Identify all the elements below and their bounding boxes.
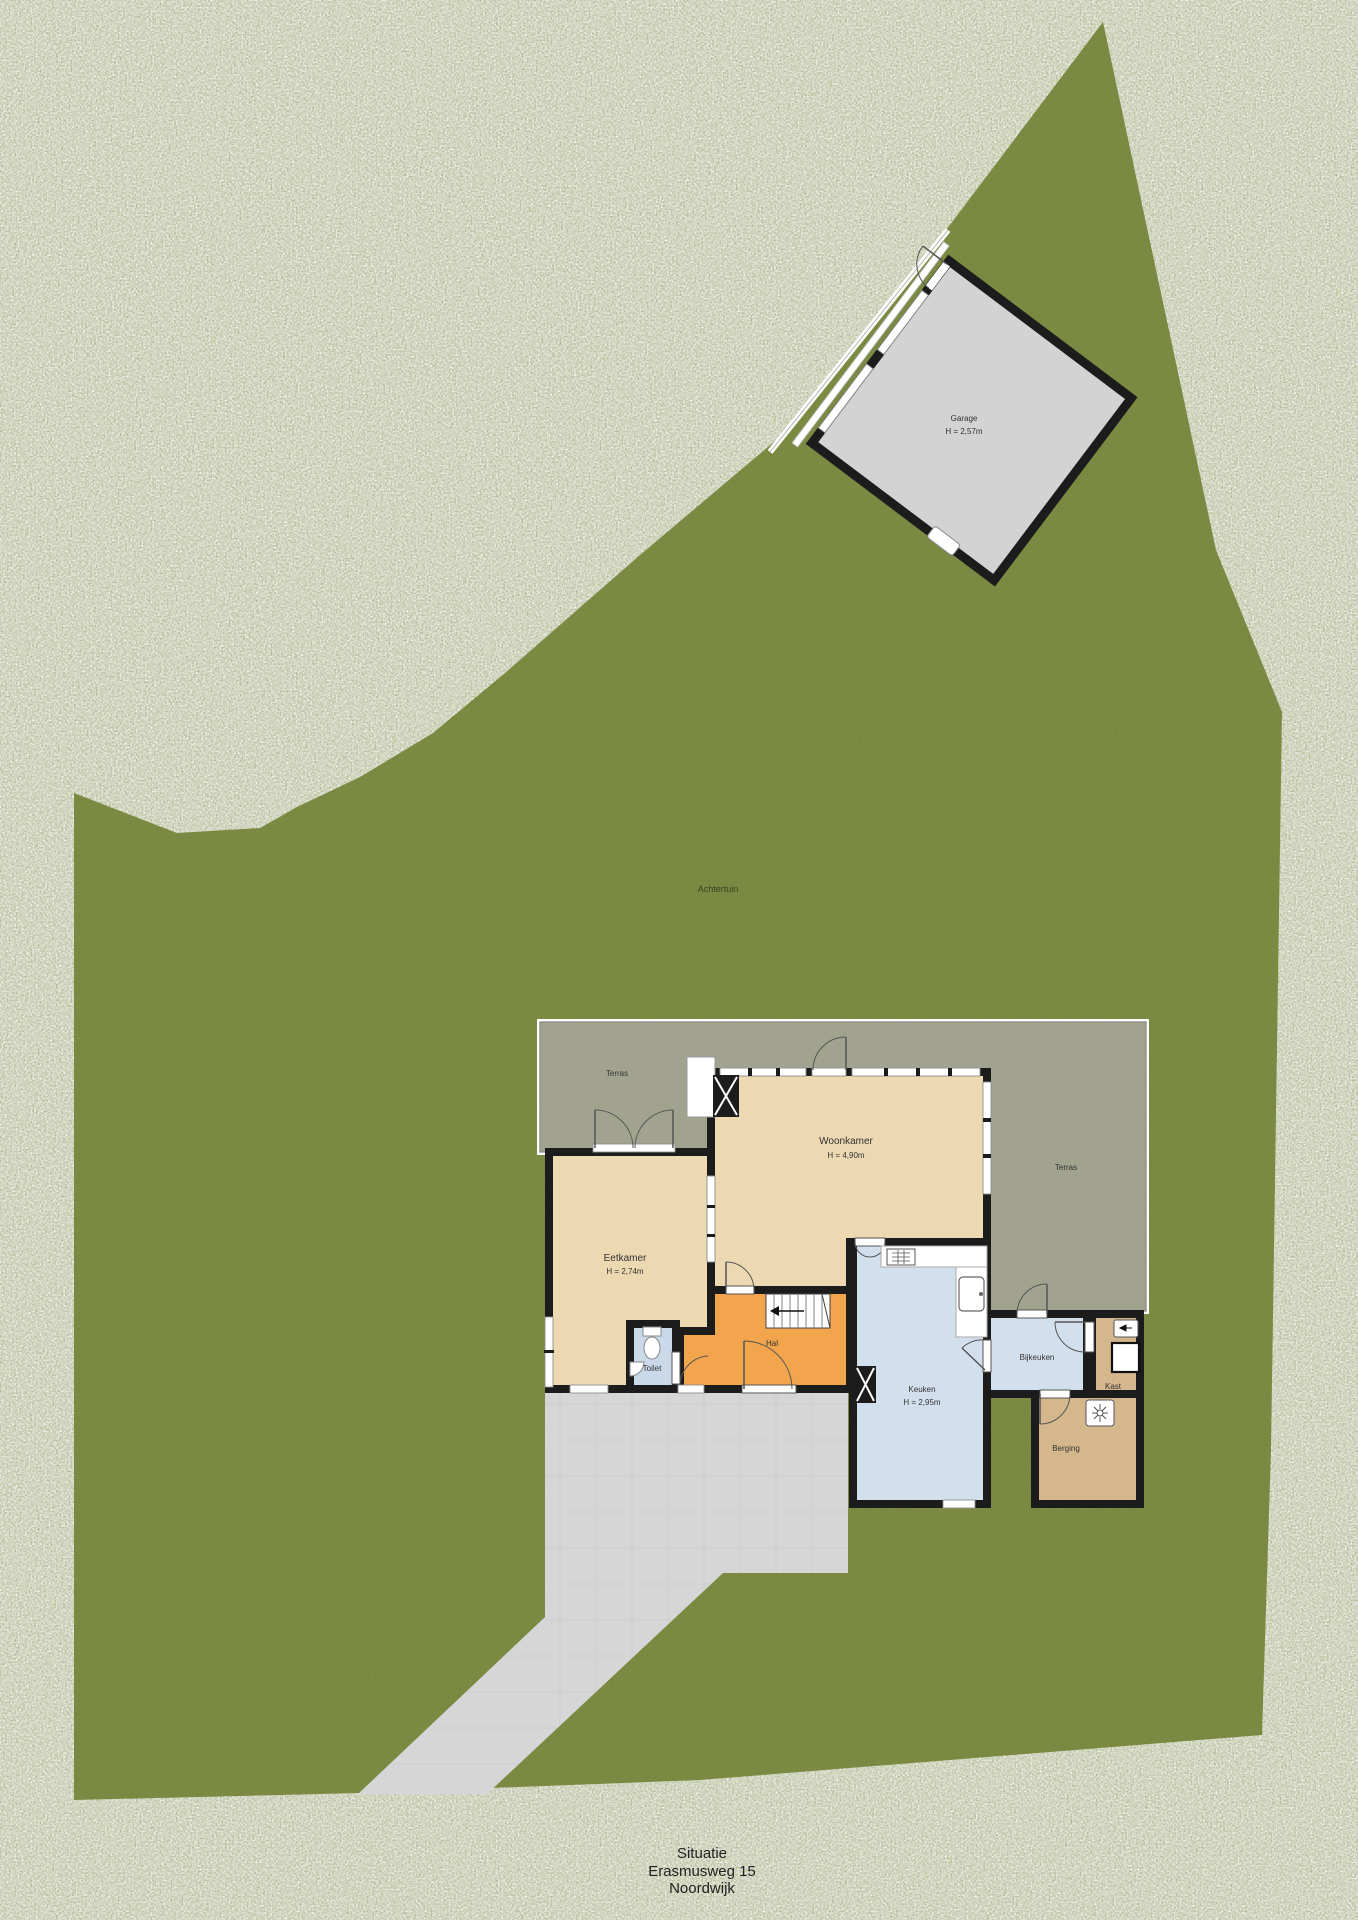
woonkamer-height-label: H = 4,90m	[827, 1151, 864, 1160]
garage-height-label: H = 2,57m	[945, 427, 982, 436]
caption-city: Noordwijk	[669, 1880, 735, 1897]
washing-machine-icon	[1112, 1343, 1139, 1372]
keuken-label: Keuken	[908, 1385, 935, 1394]
caption-title: Situatie	[677, 1845, 727, 1862]
eetkamer-label: Eetkamer	[604, 1253, 647, 1264]
berging-boiler	[1086, 1400, 1114, 1426]
site-plan-drawing: Garage H = 2,57m Achtertuin	[0, 0, 1358, 1920]
garage-label: Garage	[951, 414, 978, 423]
kast-label: Kast	[1105, 1382, 1122, 1391]
berging-label: Berging	[1052, 1444, 1080, 1453]
staircase	[766, 1294, 830, 1328]
eetkamer-height-label: H = 2,74m	[606, 1267, 643, 1276]
site-plan-page: Garage H = 2,57m Achtertuin	[0, 0, 1358, 1920]
caption-street: Erasmusweg 15	[648, 1863, 756, 1880]
bijkeuken-label: Bijkeuken	[1020, 1353, 1055, 1362]
terras-left-label: Terras	[606, 1069, 628, 1078]
terras-right-label: Terras	[1055, 1163, 1077, 1172]
kast-fixtures	[1112, 1320, 1139, 1372]
hal-label: Hal	[766, 1339, 778, 1348]
chimney-kitchen	[855, 1366, 876, 1403]
toilet-label: Toilet	[643, 1364, 662, 1373]
achtertuin-label: Achtertuin	[698, 884, 739, 894]
keuken-height-label: H = 2,95m	[903, 1398, 940, 1407]
woonkamer-label: Woonkamer	[819, 1136, 873, 1147]
